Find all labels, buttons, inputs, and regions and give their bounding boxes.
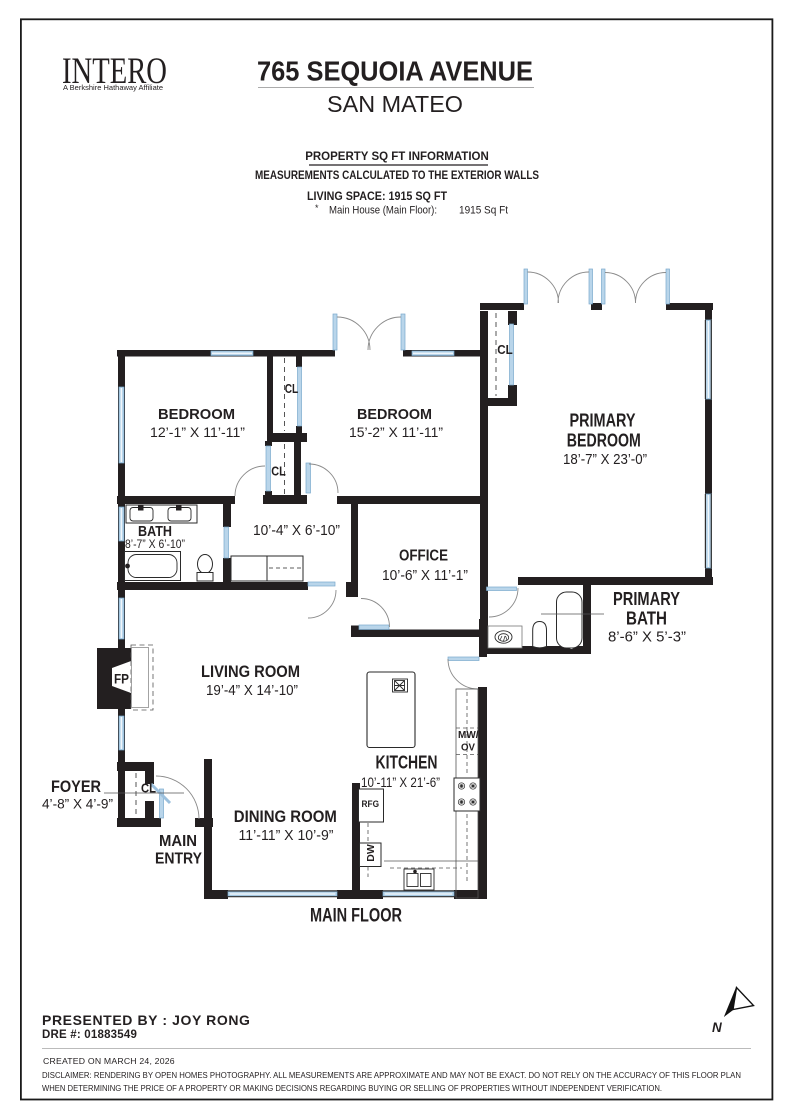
svg-text:PRIMARY: PRIMARY (570, 411, 636, 431)
svg-text:WHEN DETERMINING THE PRICE OF: WHEN DETERMINING THE PRICE OF A PROPERTY… (42, 1084, 662, 1093)
svg-text:12’-1” X 11’-11”: 12’-1” X 11’-11” (150, 424, 245, 440)
svg-text:ENTRY: ENTRY (155, 850, 203, 867)
svg-text:11’-11” X 10’-9”: 11’-11” X 10’-9” (239, 828, 334, 844)
svg-text:PRESENTED BY : JOY RONG: PRESENTED BY : JOY RONG (42, 1012, 251, 1028)
svg-text:10’-6” X 11’-1”: 10’-6” X 11’-1” (382, 568, 468, 584)
svg-text:PRIMARY: PRIMARY (613, 589, 680, 609)
svg-text:4’-8” X 4’-9”: 4’-8” X 4’-9” (42, 796, 113, 812)
svg-text:DINING ROOM: DINING ROOM (234, 807, 337, 826)
svg-text:10’-4” X 6’-10”: 10’-4” X 6’-10” (253, 523, 340, 539)
svg-text:LIVING ROOM: LIVING ROOM (201, 663, 300, 681)
svg-text:KITCHEN: KITCHEN (376, 753, 438, 773)
svg-text:765 SEQUOIA AVENUE: 765 SEQUOIA AVENUE (257, 56, 533, 87)
svg-text:LIVING SPACE: 1915 SQ FT: LIVING SPACE: 1915 SQ FT (307, 189, 448, 203)
svg-text:19’-4” X 14’-10”: 19’-4” X 14’-10” (206, 683, 298, 699)
svg-text:CL: CL (141, 781, 156, 796)
svg-text:DISCLAIMER: RENDERING BY OPEN: DISCLAIMER: RENDERING BY OPEN HOMES PHOT… (42, 1071, 741, 1080)
svg-text:15’-2” X 11’-11”: 15’-2” X 11’-11” (349, 424, 443, 440)
svg-text:MW/: MW/ (458, 730, 479, 741)
svg-text:*: * (315, 203, 319, 213)
svg-text:8’-6” X 5’-3”: 8’-6” X 5’-3” (608, 630, 686, 646)
svg-text:CL: CL (271, 464, 286, 479)
svg-text:SAN MATEO: SAN MATEO (327, 91, 463, 117)
svg-text:CREATED ON MARCH 24, 2026: CREATED ON MARCH 24, 2026 (43, 1056, 175, 1066)
svg-text:CL: CL (285, 381, 299, 396)
svg-text:BEDROOM: BEDROOM (567, 431, 641, 451)
svg-text:N: N (712, 1020, 722, 1035)
svg-text:PROPERTY SQ FT INFORMATION: PROPERTY SQ FT INFORMATION (305, 151, 489, 163)
svg-text:10’-11” X 21’-6”: 10’-11” X 21’-6” (361, 774, 440, 790)
svg-text:8’-7” X 6’-10”: 8’-7” X 6’-10” (125, 537, 185, 551)
svg-text:FOYER: FOYER (51, 778, 101, 796)
svg-text:CL: CL (497, 342, 513, 357)
svg-text:Main House (Main Floor):: Main House (Main Floor): (329, 205, 437, 217)
svg-text:18’-7” X 23’-0”: 18’-7” X 23’-0” (563, 451, 647, 468)
svg-text:A Berkshire Hathaway Affiliate: A Berkshire Hathaway Affiliate (63, 83, 163, 92)
svg-text:DW: DW (366, 844, 377, 862)
svg-text:RFG: RFG (362, 799, 380, 810)
svg-text:FP: FP (114, 671, 129, 687)
svg-text:MAIN FLOOR: MAIN FLOOR (310, 906, 402, 927)
svg-text:BEDROOM: BEDROOM (158, 406, 235, 423)
svg-text:MAIN: MAIN (159, 833, 197, 850)
svg-text:BATH: BATH (626, 609, 667, 629)
svg-text:OFFICE: OFFICE (399, 548, 448, 565)
svg-text:OV: OV (461, 742, 475, 753)
svg-text:BEDROOM: BEDROOM (357, 406, 432, 423)
svg-text:1915 Sq Ft: 1915 Sq Ft (459, 205, 508, 217)
svg-text:MEASUREMENTS CALCULATED TO THE: MEASUREMENTS CALCULATED TO THE EXTERIOR … (255, 170, 539, 182)
svg-text:DRE #: 01883549: DRE #: 01883549 (42, 1029, 137, 1041)
